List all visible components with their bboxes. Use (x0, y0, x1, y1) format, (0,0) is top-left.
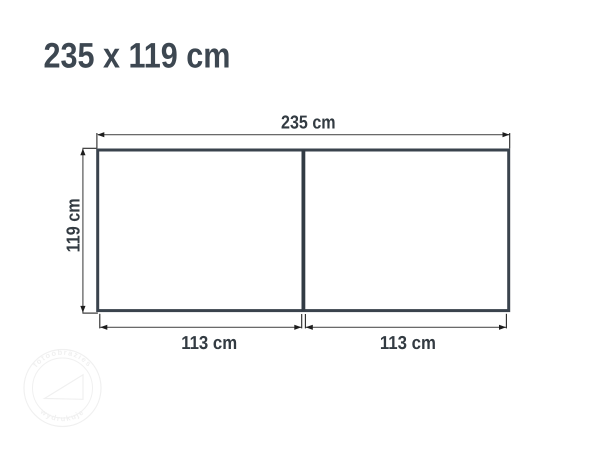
svg-text:wydrukuje: wydrukuje (38, 406, 86, 423)
svg-text:235 cm: 235 cm (281, 111, 336, 132)
svg-text:113 cm: 113 cm (181, 332, 237, 353)
svg-text:235 x 119 cm: 235 x 119 cm (44, 35, 231, 75)
svg-text:113 cm: 113 cm (380, 332, 436, 353)
svg-text:119 cm: 119 cm (63, 198, 84, 252)
